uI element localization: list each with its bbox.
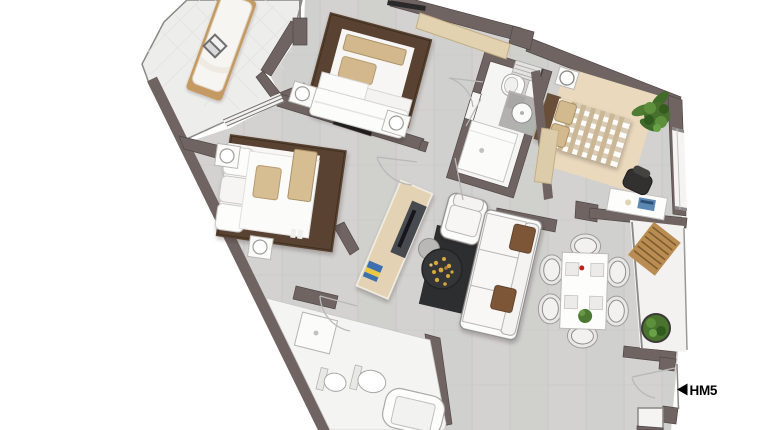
svg-text:HM5: HM5 <box>690 383 718 398</box>
